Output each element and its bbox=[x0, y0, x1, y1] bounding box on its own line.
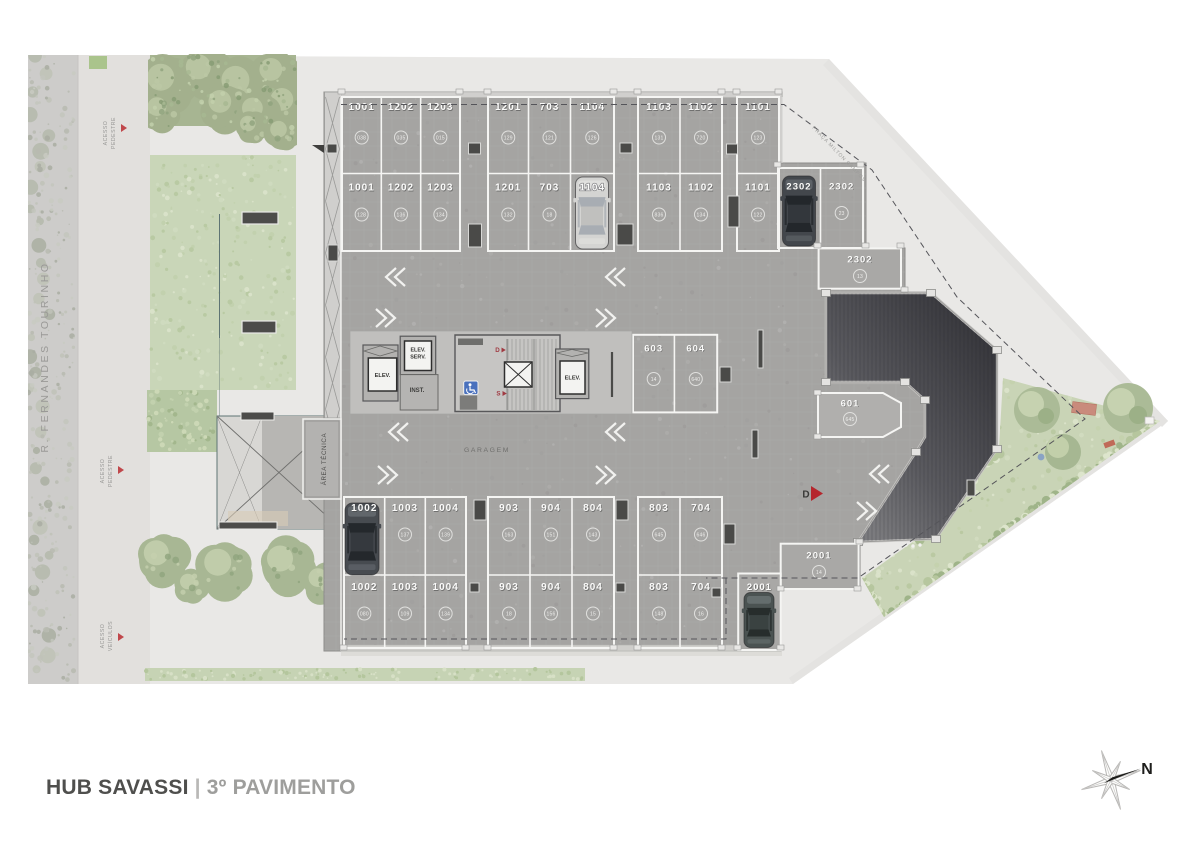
svg-text:134: 134 bbox=[441, 611, 450, 617]
svg-text:1202: 1202 bbox=[388, 102, 414, 113]
svg-text:163: 163 bbox=[505, 532, 514, 538]
svg-text:137: 137 bbox=[401, 532, 410, 538]
svg-text:148: 148 bbox=[655, 611, 664, 617]
svg-text:1002: 1002 bbox=[351, 582, 377, 593]
svg-text:1101: 1101 bbox=[745, 183, 771, 194]
svg-text:803: 803 bbox=[649, 503, 669, 514]
svg-text:1201: 1201 bbox=[495, 102, 521, 113]
svg-text:ACESSO: ACESSO bbox=[100, 624, 106, 649]
svg-text:18: 18 bbox=[547, 212, 553, 218]
svg-text:2302: 2302 bbox=[786, 181, 811, 192]
svg-text:23: 23 bbox=[839, 211, 845, 217]
svg-text:R. FERNANDES TOURINHO: R. FERNANDES TOURINHO bbox=[39, 261, 51, 452]
svg-text:015: 015 bbox=[436, 135, 445, 141]
svg-text:D: D bbox=[495, 347, 500, 354]
svg-text:1004: 1004 bbox=[433, 503, 459, 514]
svg-text:134: 134 bbox=[697, 212, 706, 218]
svg-text:603: 603 bbox=[644, 343, 663, 354]
svg-text:903: 903 bbox=[499, 503, 519, 514]
svg-text:121: 121 bbox=[545, 135, 554, 141]
svg-text:1203: 1203 bbox=[427, 183, 453, 194]
svg-text:703: 703 bbox=[540, 102, 560, 113]
svg-text:1203: 1203 bbox=[427, 102, 453, 113]
svg-text:904: 904 bbox=[541, 503, 561, 514]
svg-text:15: 15 bbox=[590, 611, 596, 617]
svg-text:1101: 1101 bbox=[745, 102, 771, 113]
svg-text:2001: 2001 bbox=[747, 582, 772, 593]
svg-text:1001: 1001 bbox=[349, 102, 375, 113]
svg-text:13: 13 bbox=[857, 274, 863, 280]
svg-text:604: 604 bbox=[686, 343, 705, 354]
svg-text:PEDESTRE: PEDESTRE bbox=[111, 117, 117, 149]
svg-text:1001: 1001 bbox=[349, 183, 375, 194]
svg-text:VEÍCULOS: VEÍCULOS bbox=[107, 621, 114, 651]
svg-text:131: 131 bbox=[655, 135, 664, 141]
svg-text:704: 704 bbox=[691, 503, 711, 514]
svg-text:646: 646 bbox=[697, 532, 706, 538]
svg-text:136: 136 bbox=[397, 212, 406, 218]
svg-text:1104: 1104 bbox=[579, 183, 605, 194]
svg-text:156: 156 bbox=[547, 611, 556, 617]
svg-text:903: 903 bbox=[499, 582, 519, 593]
svg-text:720: 720 bbox=[697, 135, 706, 141]
svg-text:645: 645 bbox=[846, 417, 855, 423]
svg-text:S: S bbox=[496, 391, 500, 398]
svg-text:2302: 2302 bbox=[847, 254, 872, 265]
svg-text:ELEV.: ELEV. bbox=[375, 373, 391, 379]
svg-text:ACESSO: ACESSO bbox=[100, 459, 106, 484]
svg-text:128: 128 bbox=[357, 212, 366, 218]
svg-text:601: 601 bbox=[841, 398, 860, 409]
svg-text:2001: 2001 bbox=[806, 550, 831, 561]
svg-text:703: 703 bbox=[540, 183, 560, 194]
svg-text:1004: 1004 bbox=[433, 582, 459, 593]
svg-text:14: 14 bbox=[651, 377, 657, 383]
svg-text:18: 18 bbox=[506, 611, 512, 617]
svg-text:1002: 1002 bbox=[351, 503, 377, 514]
svg-text:1102: 1102 bbox=[688, 102, 714, 113]
svg-text:ELEV.: ELEV. bbox=[410, 348, 426, 354]
svg-text:PEDESTRE: PEDESTRE bbox=[108, 455, 114, 487]
svg-text:1201: 1201 bbox=[495, 183, 521, 194]
svg-text:1003: 1003 bbox=[392, 582, 418, 593]
svg-text:134: 134 bbox=[436, 212, 445, 218]
svg-text:GARAGEM: GARAGEM bbox=[464, 447, 510, 454]
svg-text:2302: 2302 bbox=[829, 181, 854, 192]
svg-text:132: 132 bbox=[504, 212, 513, 218]
svg-text:143: 143 bbox=[589, 532, 598, 538]
svg-text:1102: 1102 bbox=[688, 183, 714, 194]
svg-text:804: 804 bbox=[583, 503, 603, 514]
svg-text:1103: 1103 bbox=[646, 183, 672, 194]
svg-text:123: 123 bbox=[754, 135, 763, 141]
svg-text:ELEV.: ELEV. bbox=[565, 376, 581, 382]
svg-text:139: 139 bbox=[441, 532, 450, 538]
svg-text:836: 836 bbox=[655, 212, 664, 218]
svg-text:ÁREA TÉCNICA: ÁREA TÉCNICA bbox=[321, 432, 328, 485]
svg-text:080: 080 bbox=[360, 611, 369, 617]
svg-text:640: 640 bbox=[691, 377, 700, 383]
svg-text:D: D bbox=[802, 490, 809, 501]
svg-text:1202: 1202 bbox=[388, 183, 414, 194]
svg-text:N: N bbox=[1141, 761, 1153, 778]
svg-text:151: 151 bbox=[547, 532, 556, 538]
svg-text:126: 126 bbox=[588, 135, 597, 141]
svg-text:14: 14 bbox=[816, 570, 822, 576]
svg-text:1003: 1003 bbox=[392, 503, 418, 514]
svg-text:HUB SAVASSI | 3º PAVIMENTO: HUB SAVASSI | 3º PAVIMENTO bbox=[46, 776, 356, 799]
svg-text:803: 803 bbox=[649, 582, 669, 593]
svg-text:1103: 1103 bbox=[646, 102, 672, 113]
svg-text:129: 129 bbox=[504, 135, 513, 141]
svg-text:SERV.: SERV. bbox=[410, 355, 426, 361]
svg-text:122: 122 bbox=[754, 212, 763, 218]
svg-text:INST.: INST. bbox=[410, 388, 425, 394]
svg-text:1104: 1104 bbox=[579, 102, 605, 113]
svg-text:904: 904 bbox=[541, 582, 561, 593]
svg-text:038: 038 bbox=[357, 135, 366, 141]
svg-text:109: 109 bbox=[401, 611, 410, 617]
svg-text:16: 16 bbox=[698, 611, 704, 617]
svg-text:645: 645 bbox=[655, 532, 664, 538]
svg-text:704: 704 bbox=[691, 582, 711, 593]
svg-text:035: 035 bbox=[397, 135, 406, 141]
svg-text:804: 804 bbox=[583, 582, 603, 593]
svg-text:ACESSO: ACESSO bbox=[103, 121, 109, 146]
